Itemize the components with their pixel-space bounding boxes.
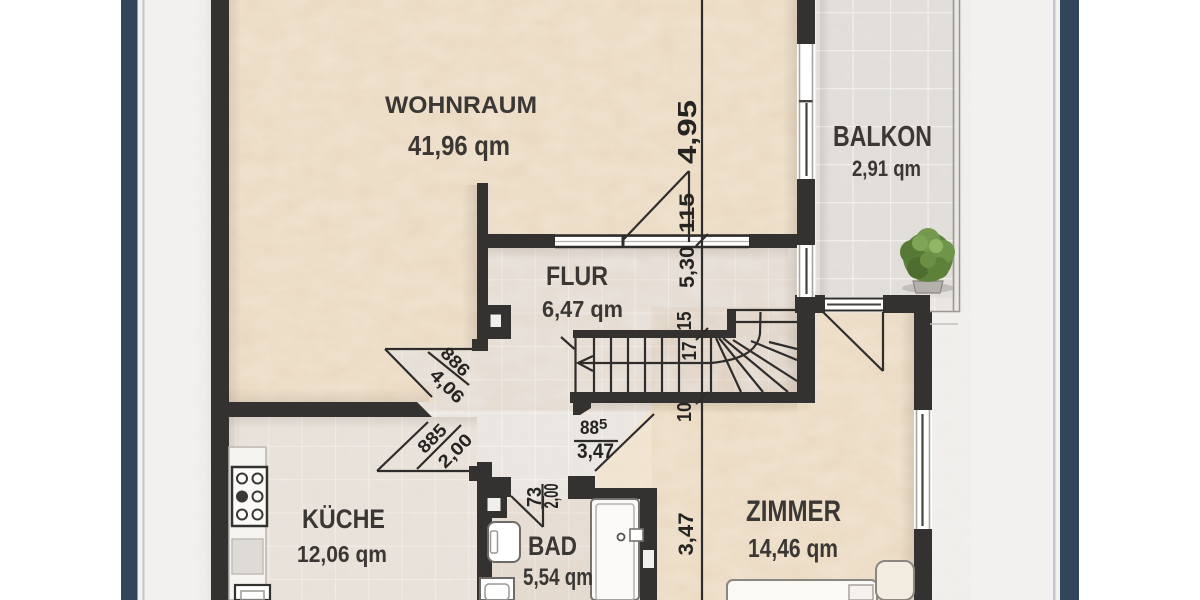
svg-text:5,30: 5,30 [676, 246, 699, 288]
svg-text:5: 5 [599, 416, 607, 433]
svg-text:41,96 qm: 41,96 qm [408, 130, 510, 161]
svg-text:10: 10 [674, 402, 696, 422]
svg-text:88: 88 [580, 418, 599, 439]
svg-text:3,47: 3,47 [675, 513, 698, 556]
svg-text:12,06 qm: 12,06 qm [297, 541, 387, 567]
svg-text:BALKON: BALKON [833, 121, 932, 153]
svg-text:ZIMMER: ZIMMER [746, 495, 841, 528]
svg-text:115: 115 [676, 193, 699, 233]
svg-text:2,91 qm: 2,91 qm [852, 156, 921, 181]
svg-text:BAD: BAD [528, 531, 577, 561]
svg-text:WOHNRAUM: WOHNRAUM [385, 92, 537, 119]
svg-text:15: 15 [674, 312, 696, 331]
svg-text:3,47: 3,47 [577, 440, 614, 463]
svg-text:6,47 qm: 6,47 qm [542, 296, 623, 322]
svg-text:2,00: 2,00 [541, 484, 563, 509]
svg-text:17: 17 [679, 342, 701, 361]
svg-text:KÜCHE: KÜCHE [302, 504, 385, 534]
svg-text:4,95: 4,95 [672, 100, 702, 164]
svg-text:14,46 qm: 14,46 qm [748, 533, 838, 563]
svg-text:5,54 qm: 5,54 qm [523, 564, 593, 591]
svg-text:FLUR: FLUR [546, 261, 608, 291]
